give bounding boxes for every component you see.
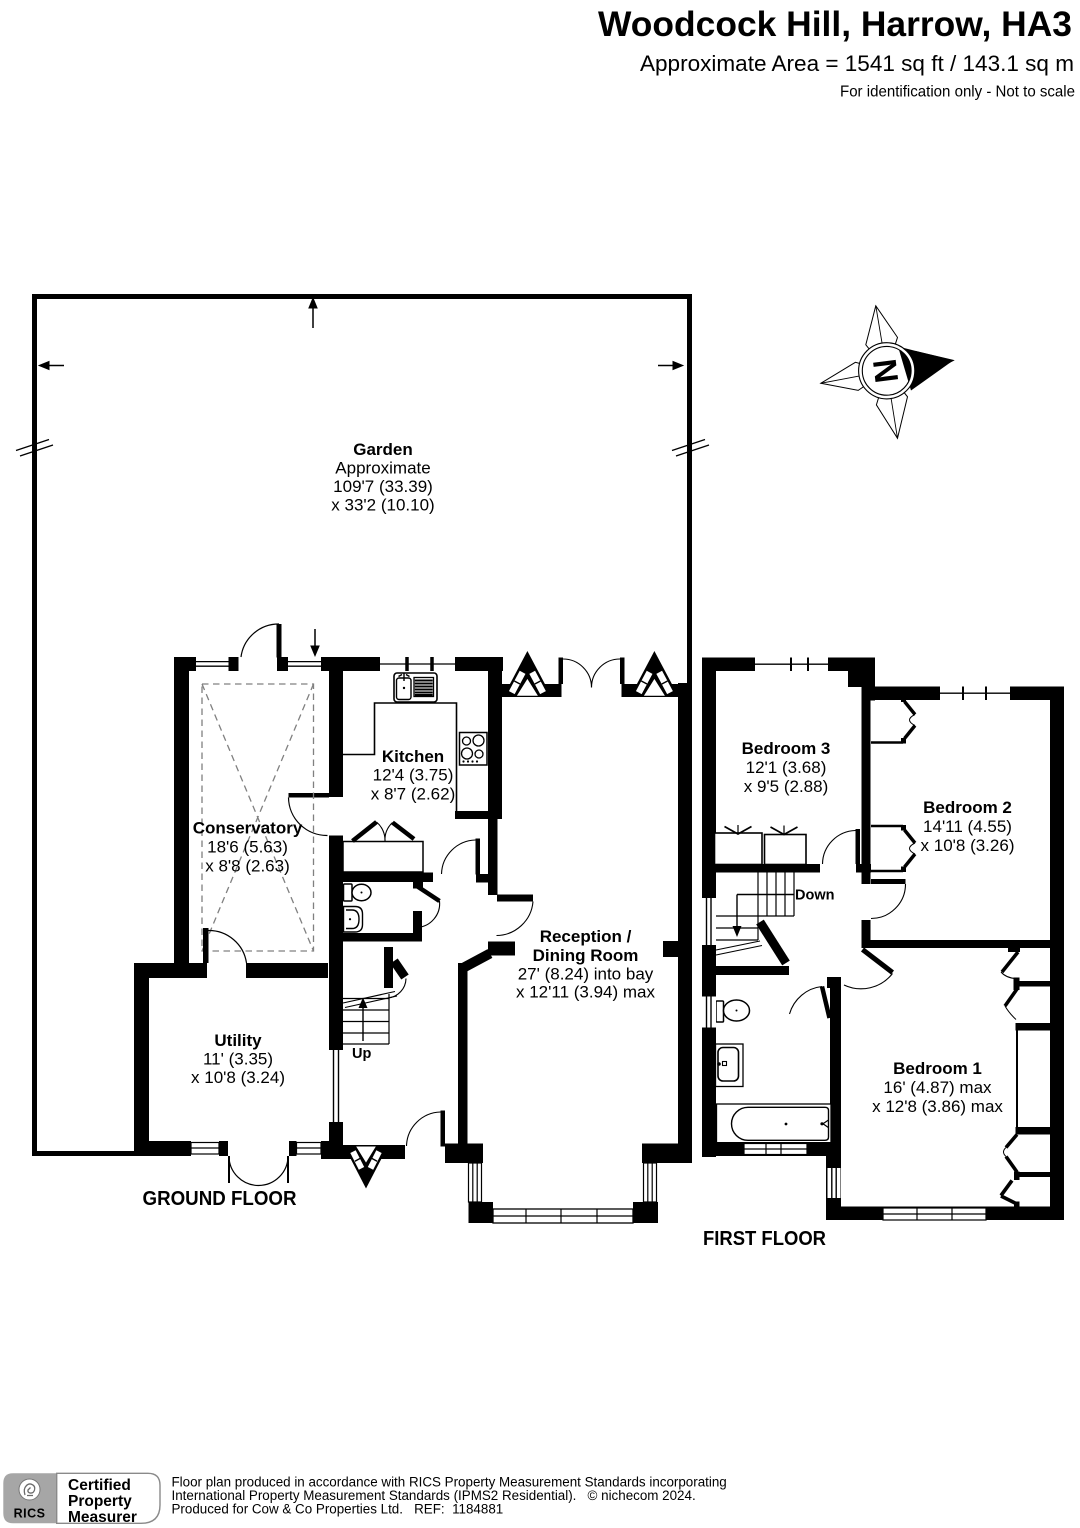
svg-text:Approximate Area = 1541 sq ft: Approximate Area = 1541 sq ft / 143.1 sq… [640,51,1074,76]
svg-text:12'1 (3.68): 12'1 (3.68) [746,758,827,777]
svg-text:16' (4.87) max: 16' (4.87) max [883,1078,992,1097]
svg-text:Certified: Certified [68,1477,131,1494]
svg-text:109'7 (33.39): 109'7 (33.39) [333,477,433,496]
svg-text:Measurer: Measurer [68,1509,137,1526]
svg-text:Approximate: Approximate [335,459,430,478]
svg-text:Produced for Cow & Co Properti: Produced for Cow & Co Properties Ltd. RE… [172,1502,504,1517]
svg-text:x 10'8 (3.26): x 10'8 (3.26) [921,836,1015,855]
svg-text:Bedroom 3: Bedroom 3 [742,739,831,758]
svg-text:Up: Up [352,1046,371,1062]
svg-text:x 8'7 (2.62): x 8'7 (2.62) [371,785,456,804]
svg-text:12'4 (3.75): 12'4 (3.75) [373,766,454,785]
svg-text:Kitchen: Kitchen [382,747,444,766]
svg-text:For identification only - Not: For identification only - Not to scale [840,84,1075,101]
svg-text:GROUND FLOOR: GROUND FLOOR [143,1187,297,1210]
svg-text:x 33'2 (10.10): x 33'2 (10.10) [331,496,434,515]
svg-text:27' (8.24) into bay: 27' (8.24) into bay [518,965,654,984]
svg-text:Down: Down [795,888,834,904]
svg-text:x 12'11 (3.94) max: x 12'11 (3.94) max [516,983,655,1002]
svg-text:Dining Room: Dining Room [533,946,639,965]
svg-text:Garden: Garden [353,440,413,459]
svg-text:x 10'8 (3.24): x 10'8 (3.24) [191,1068,285,1087]
svg-text:x 8'8 (2.63): x 8'8 (2.63) [205,857,290,876]
svg-text:RICS: RICS [14,1507,46,1521]
svg-text:N: N [866,357,906,385]
svg-text:Utility: Utility [214,1031,262,1050]
svg-text:Reception /: Reception / [540,927,632,946]
svg-text:x 12'8 (3.86) max: x 12'8 (3.86) max [872,1097,1003,1116]
svg-text:Woodcock Hill, Harrow, HA3: Woodcock Hill, Harrow, HA3 [598,5,1072,44]
svg-text:11' (3.35): 11' (3.35) [203,1050,273,1069]
svg-text:Property: Property [68,1493,132,1510]
svg-text:Bedroom 1: Bedroom 1 [893,1059,982,1078]
svg-text:Conservatory: Conservatory [193,819,303,838]
svg-text:18'6 (5.63): 18'6 (5.63) [207,838,288,857]
svg-text:x 9'5 (2.88): x 9'5 (2.88) [744,777,829,796]
svg-text:Bedroom 2: Bedroom 2 [923,798,1012,817]
svg-text:14'11 (4.55): 14'11 (4.55) [923,817,1012,836]
svg-text:FIRST FLOOR: FIRST FLOOR [703,1227,826,1250]
